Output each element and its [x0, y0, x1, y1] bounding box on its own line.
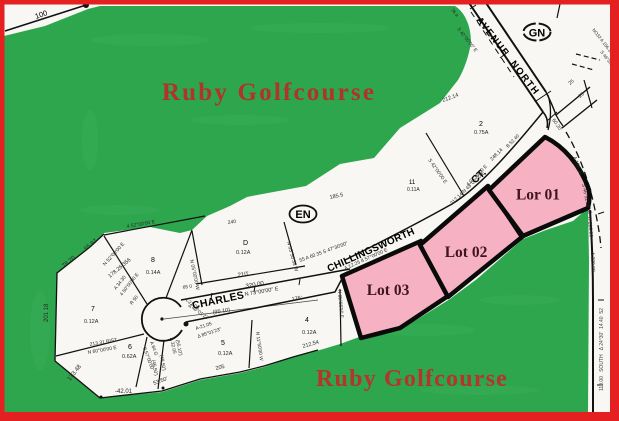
svg-text:0.11A: 0.11A: [407, 187, 420, 193]
svg-text:110.00 SOUTH Δ 24°30' 14.: 110.00 SOUTH Δ 24°30' 14.40 52: [599, 308, 605, 391]
svg-text:11: 11: [409, 180, 416, 186]
svg-text:6: 6: [128, 344, 132, 351]
svg-text:-42.01: -42.01: [115, 389, 133, 395]
svg-text:0.12A: 0.12A: [236, 250, 251, 256]
svg-text:5: 5: [221, 340, 225, 347]
svg-text:Δ 320.00: Δ 320.00: [589, 252, 596, 272]
svg-text:0.12A: 0.12A: [84, 319, 99, 325]
svg-text:240: 240: [227, 219, 236, 226]
svg-text:4: 4: [305, 317, 309, 324]
svg-text:201 18: 201 18: [44, 303, 50, 322]
svg-text:GN: GN: [529, 28, 546, 40]
svg-text:2: 2: [479, 121, 483, 128]
svg-text:EN: EN: [295, 209, 310, 221]
svg-text:0.62A: 0.62A: [122, 354, 137, 360]
svg-text:0.12A: 0.12A: [218, 351, 233, 357]
svg-text:Ruby Golfcourse: Ruby Golfcourse: [162, 79, 376, 106]
svg-text:0.12A: 0.12A: [302, 330, 317, 336]
svg-text:0.14A: 0.14A: [146, 270, 161, 276]
svg-text:0.75A: 0.75A: [474, 130, 489, 136]
svg-text:7: 7: [91, 306, 95, 313]
svg-text:Ruby Golfcourse: Ruby Golfcourse: [316, 366, 508, 392]
svg-text:Lot 02: Lot 02: [445, 244, 488, 261]
svg-text:Lot 03: Lot 03: [367, 282, 410, 299]
svg-text:Lor 01: Lor 01: [516, 187, 560, 204]
svg-text:D: D: [243, 240, 248, 247]
svg-text:8: 8: [151, 257, 155, 264]
